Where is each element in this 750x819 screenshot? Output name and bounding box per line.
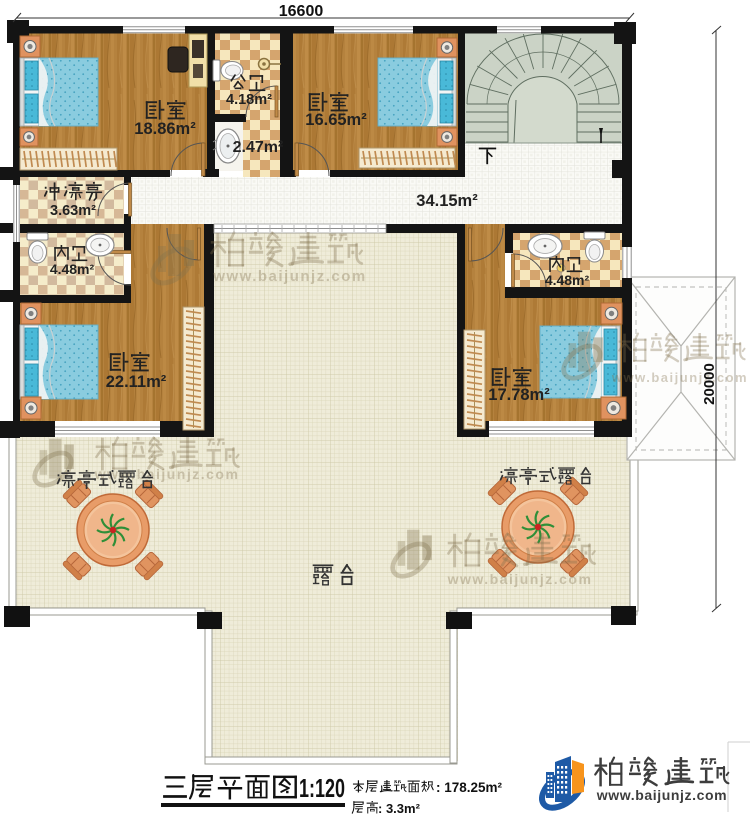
svg-text:18.86m²: 18.86m² — [134, 120, 196, 138]
svg-text:: 178.25m²: : 178.25m² — [436, 780, 503, 795]
svg-text:4.48m²: 4.48m² — [545, 272, 590, 288]
svg-text:4.48m²: 4.48m² — [50, 261, 95, 277]
svg-text:16600: 16600 — [279, 3, 324, 20]
svg-text:20000: 20000 — [701, 363, 718, 405]
svg-text:1:120: 1:120 — [299, 773, 345, 803]
svg-text:www.baijunjz.com: www.baijunjz.com — [611, 370, 748, 385]
svg-text:www.baijunjz.com: www.baijunjz.com — [447, 571, 593, 587]
svg-text:www.baijunjz.com: www.baijunjz.com — [94, 466, 240, 482]
svg-text:4.18m²: 4.18m² — [226, 92, 272, 108]
svg-text:2.47m²: 2.47m² — [233, 139, 284, 156]
svg-text:www.baijunjz.com: www.baijunjz.com — [212, 268, 366, 285]
svg-text:34.15m²: 34.15m² — [416, 192, 478, 210]
svg-text:22.11m²: 22.11m² — [106, 373, 167, 391]
svg-text:: 3.3m²: : 3.3m² — [378, 801, 421, 816]
svg-text:17.78m²: 17.78m² — [488, 386, 550, 404]
svg-text:www.baijunjz.com: www.baijunjz.com — [596, 787, 727, 803]
svg-text:16.65m²: 16.65m² — [305, 111, 367, 129]
svg-text:3.63m²: 3.63m² — [50, 203, 96, 219]
